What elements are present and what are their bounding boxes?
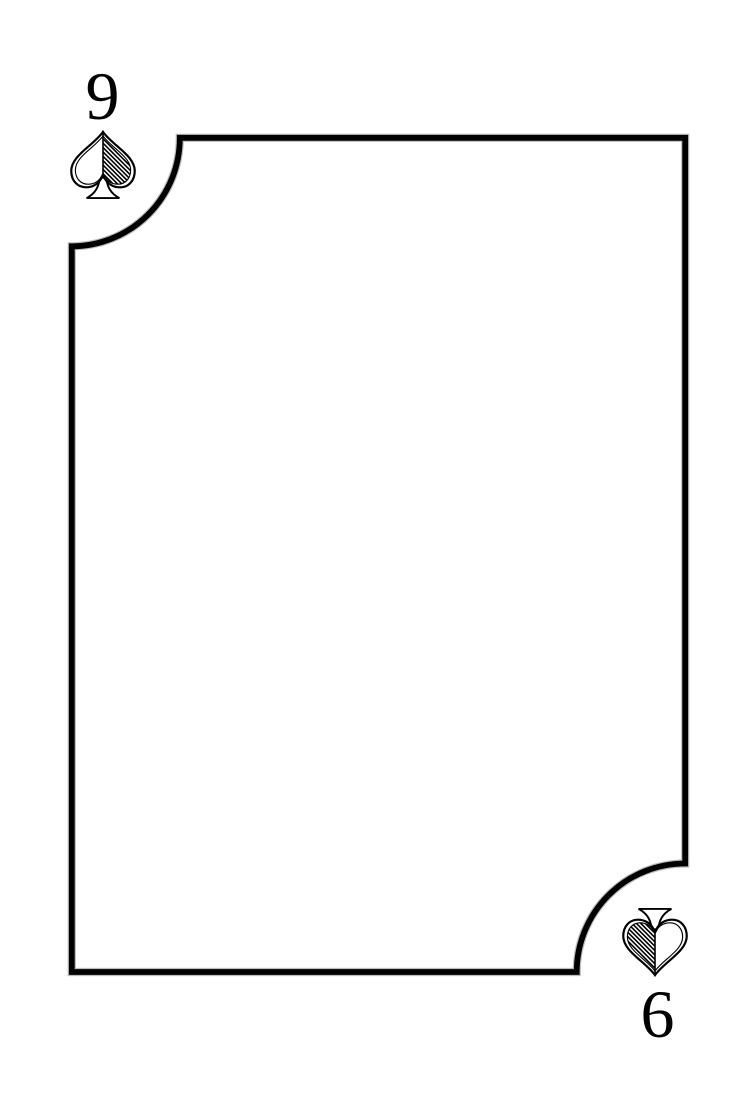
- card-inner-edge-line: [72, 138, 685, 972]
- card-rank-bottom-right: 6: [627, 973, 688, 1054]
- spade-icon: [618, 904, 692, 977]
- card-rank-top-left: 9: [72, 55, 133, 136]
- playing-card[interactable]: 9 6: [0, 0, 756, 1110]
- spade-icon: [66, 130, 140, 203]
